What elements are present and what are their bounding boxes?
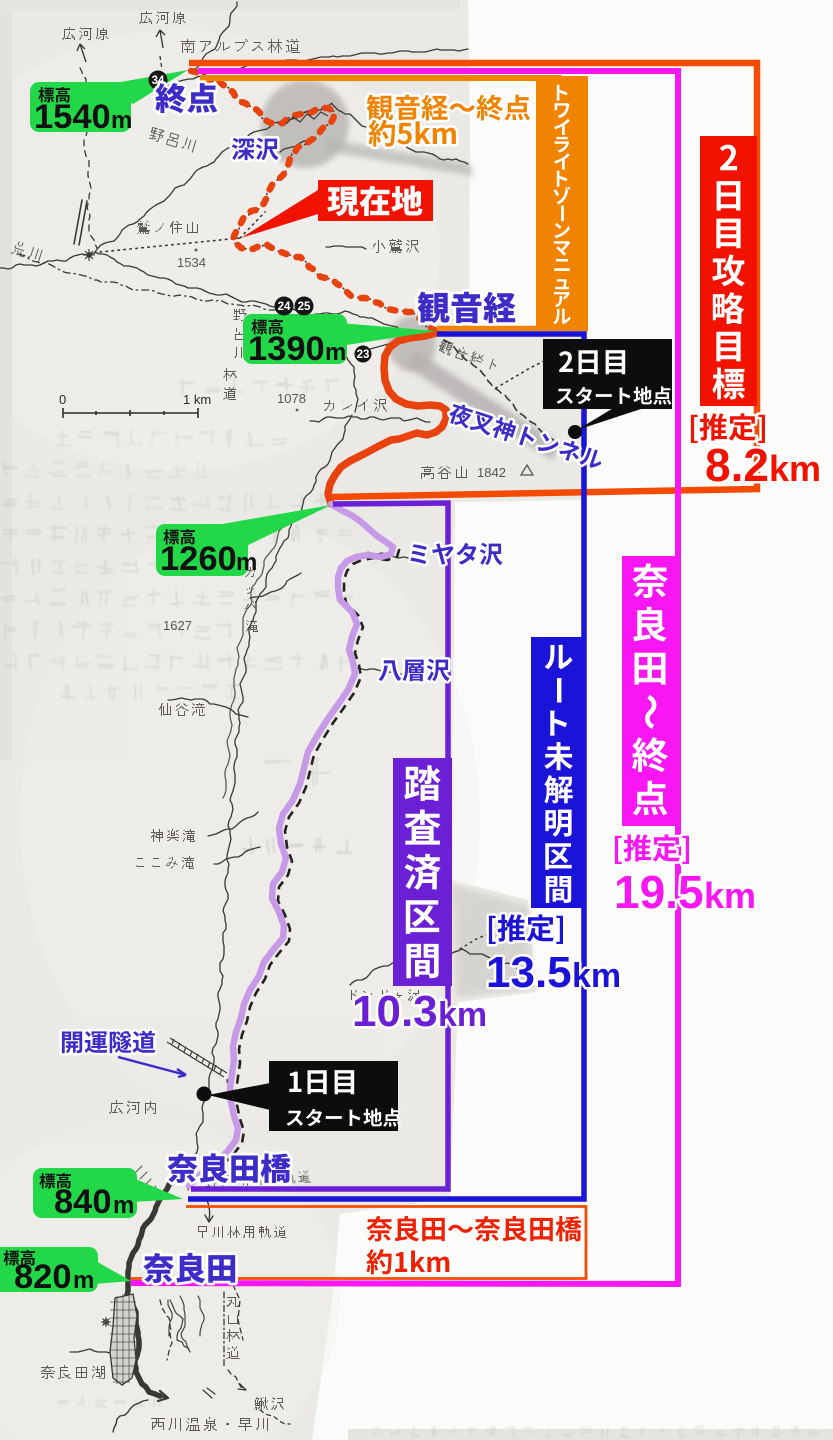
svg-text:km: km bbox=[704, 875, 756, 916]
svg-text:1260: 1260 bbox=[160, 540, 237, 578]
svg-text:1842: 1842 bbox=[477, 465, 506, 480]
svg-text:1390: 1390 bbox=[248, 330, 325, 368]
svg-text:1540: 1540 bbox=[34, 98, 111, 136]
svg-text:m: m bbox=[111, 107, 132, 134]
svg-text:24: 24 bbox=[278, 301, 291, 313]
svg-text:10.3: 10.3 bbox=[352, 987, 438, 1036]
svg-text:0: 0 bbox=[59, 392, 66, 407]
svg-text:1 km: 1 km bbox=[183, 392, 211, 407]
svg-text:m: m bbox=[236, 549, 257, 576]
svg-text:19.5: 19.5 bbox=[614, 866, 704, 918]
svg-text:1534: 1534 bbox=[177, 255, 206, 270]
svg-text:25: 25 bbox=[298, 301, 311, 313]
svg-text:8.2: 8.2 bbox=[705, 439, 769, 491]
svg-text:1078: 1078 bbox=[277, 391, 306, 406]
svg-text:23: 23 bbox=[357, 349, 370, 361]
svg-text:m: m bbox=[73, 1267, 94, 1294]
svg-text:km: km bbox=[438, 996, 487, 1034]
svg-text:1627: 1627 bbox=[163, 618, 192, 633]
svg-text:km: km bbox=[769, 448, 821, 489]
svg-text:m: m bbox=[325, 339, 346, 366]
svg-text:13.5: 13.5 bbox=[486, 948, 572, 997]
svg-text:820: 820 bbox=[14, 1258, 72, 1296]
svg-text:km: km bbox=[572, 957, 621, 995]
svg-text:840: 840 bbox=[54, 1183, 112, 1221]
svg-text:m: m bbox=[113, 1192, 134, 1219]
